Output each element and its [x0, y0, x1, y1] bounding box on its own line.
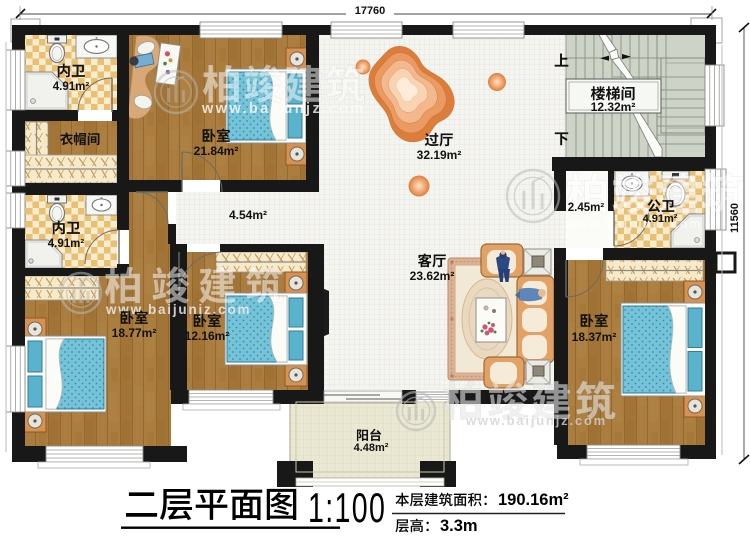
- svg-text:4.91m²: 4.91m²: [643, 213, 678, 225]
- svg-text:4.48m²: 4.48m²: [354, 442, 389, 454]
- svg-text:23.62m²: 23.62m²: [410, 269, 455, 283]
- svg-text:18.77m²: 18.77m²: [112, 326, 157, 340]
- svg-text:www.baijunjz.com: www.baijunjz.com: [201, 101, 366, 117]
- svg-text:1:100: 1:100: [308, 483, 386, 531]
- svg-text:11560: 11560: [729, 203, 741, 233]
- svg-text:2.45m²: 2.45m²: [568, 202, 605, 214]
- svg-text:www.baijunjz.com: www.baijunjz.com: [465, 413, 607, 428]
- svg-text:4.54m²: 4.54m²: [229, 208, 267, 222]
- svg-text:18.37m²: 18.37m²: [572, 330, 617, 344]
- svg-text:www.baijunjz.com: www.baijunjz.com: [105, 302, 251, 317]
- svg-text:4.91m²: 4.91m²: [53, 81, 90, 93]
- svg-text:21.84m²: 21.84m²: [194, 144, 239, 158]
- svg-text:3.3m: 3.3m: [440, 517, 478, 535]
- svg-text:12.32m²: 12.32m²: [591, 100, 636, 114]
- svg-text:17760: 17760: [355, 5, 386, 17]
- svg-text:4.91m²: 4.91m²: [48, 238, 85, 250]
- svg-text:32.19m²: 32.19m²: [417, 148, 462, 162]
- svg-text:190.16m²: 190.16m²: [498, 491, 569, 509]
- svg-text:www.baijunjz.com: www.baijunjz.com: [565, 216, 702, 231]
- svg-text:12.16m²: 12.16m²: [185, 329, 230, 343]
